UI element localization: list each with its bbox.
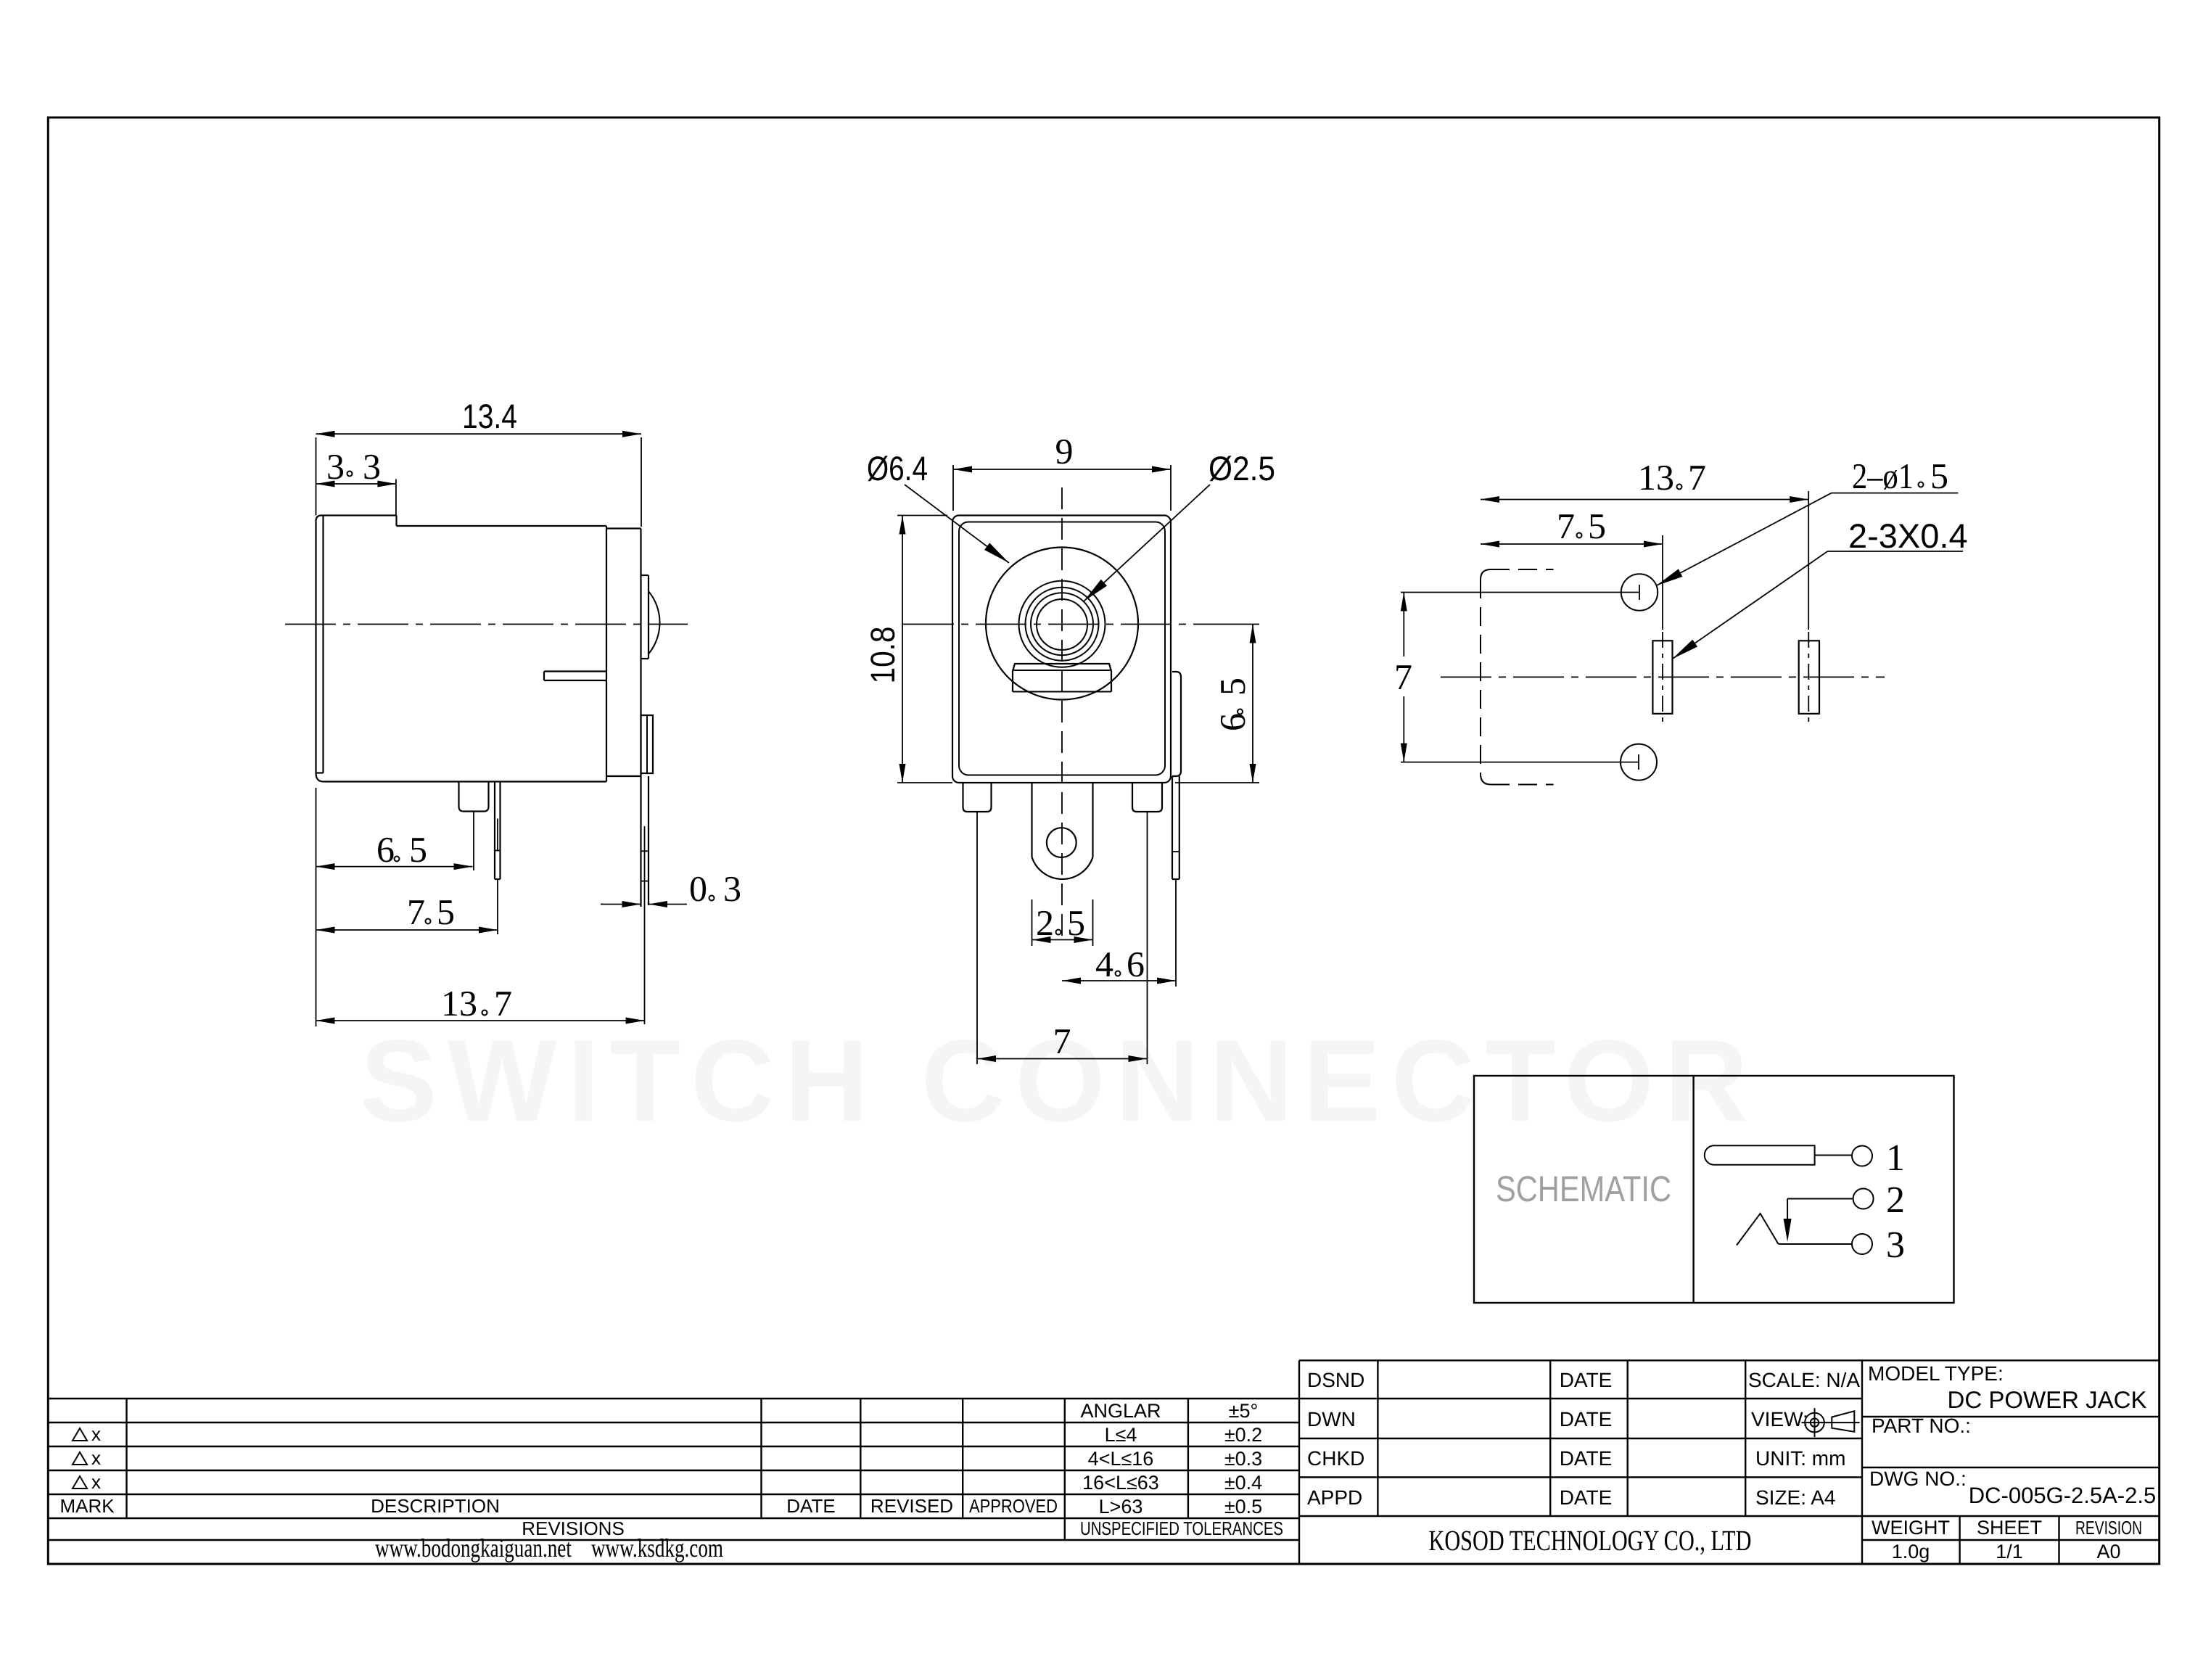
svg-text:0: 0 (689, 868, 707, 909)
svg-text:5: 5 (409, 829, 427, 870)
svg-text:APPROVED: APPROVED (969, 1495, 1058, 1517)
svg-text:5: 5 (437, 892, 455, 932)
svg-text:±5°: ±5° (1229, 1400, 1259, 1422)
svg-text:10.8: 10.8 (863, 627, 902, 684)
svg-text:SHEET: SHEET (1977, 1517, 2042, 1539)
svg-text:4: 4 (1095, 944, 1113, 984)
svg-text:2: 2 (1886, 1179, 1905, 1221)
svg-text:13: 13 (1638, 457, 1674, 498)
svg-text:3: 3 (363, 446, 381, 487)
svg-text:13: 13 (441, 983, 477, 1024)
svg-text:UNSPECIFIED TOLERANCES: UNSPECIFIED TOLERANCES (1080, 1518, 1283, 1539)
svg-text:DC-005G-2.5A-2.5: DC-005G-2.5A-2.5 (1969, 1483, 2156, 1508)
svg-text:DATE: DATE (1560, 1486, 1613, 1509)
svg-text:DATE: DATE (1560, 1408, 1613, 1430)
svg-text:x: x (91, 1423, 101, 1445)
svg-text:4<L≤16: 4<L≤16 (1088, 1448, 1154, 1470)
svg-text:1: 1 (1886, 1137, 1905, 1179)
svg-text:7: 7 (494, 983, 512, 1024)
svg-text:UNIT: mm: UNIT: mm (1755, 1447, 1845, 1470)
svg-text:SCALE: N/A: SCALE: N/A (1748, 1369, 1860, 1391)
svg-text:7: 7 (407, 892, 425, 932)
svg-text:6: 6 (1127, 944, 1145, 984)
svg-text:KOSOD TECHNOLOGY CO., LTD: KOSOD TECHNOLOGY CO., LTD (1429, 1524, 1752, 1557)
svg-text:±0.2: ±0.2 (1224, 1424, 1262, 1446)
svg-text:6: 6 (1212, 713, 1253, 731)
svg-text:VIEW:: VIEW: (1751, 1408, 1808, 1430)
svg-text:5: 5 (1212, 678, 1253, 696)
svg-text:DC POWER JACK: DC POWER JACK (1947, 1386, 2146, 1413)
svg-text:DWN: DWN (1307, 1408, 1356, 1430)
svg-text:SCHEMATIC: SCHEMATIC (1496, 1169, 1671, 1209)
svg-text:DATE: DATE (786, 1495, 835, 1517)
svg-text:16<L≤63: 16<L≤63 (1082, 1472, 1159, 1494)
svg-text:x: x (91, 1471, 101, 1493)
svg-text:CHKD: CHKD (1307, 1447, 1364, 1470)
svg-text:7: 7 (1688, 457, 1706, 498)
svg-text:REVISED: REVISED (870, 1495, 953, 1517)
svg-text:5: 5 (1588, 506, 1606, 546)
svg-text:2–ø1: 2–ø1 (1852, 456, 1914, 496)
svg-text:DESCRIPTION: DESCRIPTION (371, 1495, 500, 1517)
svg-text:1.0g: 1.0g (1892, 1541, 1930, 1562)
svg-text:2: 2 (1036, 902, 1054, 943)
svg-text:13.4: 13.4 (462, 397, 517, 435)
svg-text:3: 3 (723, 868, 741, 909)
svg-text:PART NO.:: PART NO.: (1872, 1415, 1971, 1437)
svg-text:REVISION: REVISION (2075, 1517, 2142, 1539)
svg-text:9: 9 (1055, 431, 1074, 472)
svg-text:WEIGHT: WEIGHT (1872, 1517, 1950, 1539)
svg-text:DATE: DATE (1560, 1447, 1613, 1470)
svg-text:A0: A0 (2096, 1541, 2120, 1562)
svg-text:1/1: 1/1 (1996, 1541, 2023, 1562)
svg-text:3: 3 (326, 446, 345, 487)
svg-text:7: 7 (1557, 506, 1575, 546)
svg-text:5: 5 (1930, 456, 1948, 496)
svg-text:±0.4: ±0.4 (1224, 1472, 1262, 1494)
svg-text:MARK: MARK (59, 1495, 115, 1517)
svg-text:Ø6.4: Ø6.4 (867, 449, 928, 487)
svg-text:DWG NO.:: DWG NO.: (1869, 1467, 1967, 1490)
svg-text:x: x (91, 1447, 101, 1469)
svg-text:L>63: L>63 (1099, 1496, 1143, 1518)
svg-text:DSND: DSND (1307, 1369, 1364, 1391)
svg-text:7: 7 (1394, 656, 1412, 697)
svg-text:5: 5 (1067, 902, 1085, 943)
svg-text:7: 7 (1053, 1021, 1071, 1061)
svg-text:MODEL TYPE:: MODEL TYPE: (1868, 1362, 2004, 1385)
svg-text:SIZE: A4: SIZE: A4 (1755, 1486, 1836, 1509)
svg-text:3: 3 (1886, 1224, 1905, 1266)
svg-text:L≤4: L≤4 (1105, 1424, 1137, 1446)
svg-text:Ø2.5: Ø2.5 (1209, 449, 1275, 487)
svg-text:6: 6 (376, 829, 395, 870)
svg-text:DATE: DATE (1560, 1369, 1613, 1391)
svg-text:ANGLAR: ANGLAR (1080, 1400, 1161, 1422)
svg-text:www.bodongkaiguan.net www.k: www.bodongkaiguan.net www.ksdkg.com (375, 1533, 723, 1562)
svg-text:APPD: APPD (1307, 1486, 1362, 1509)
svg-text:±0.3: ±0.3 (1224, 1448, 1262, 1470)
svg-text:2-3X0.4: 2-3X0.4 (1848, 516, 1968, 555)
svg-text:±0.5: ±0.5 (1224, 1496, 1262, 1518)
